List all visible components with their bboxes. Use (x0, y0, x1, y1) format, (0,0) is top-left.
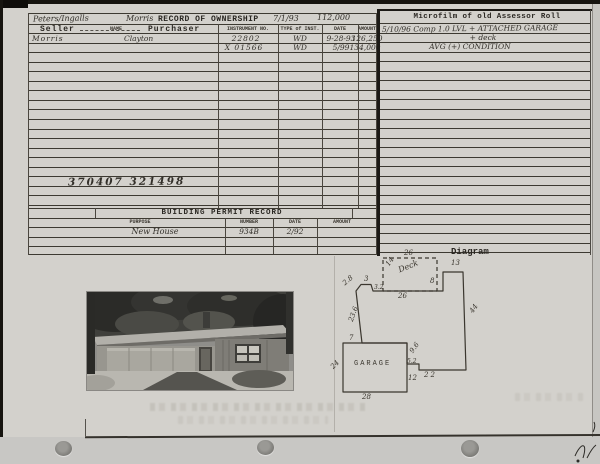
dim-garage-right-lower: 12 (408, 374, 417, 382)
dim-garage-bottom: 28 (362, 393, 371, 401)
dim-top-small: 3 (364, 275, 368, 283)
dim-deck-top: 26 (404, 249, 413, 257)
dim-bottom-wall: 22 (424, 371, 437, 379)
bleed-through-smudge (515, 393, 585, 401)
dim-top-step: 3.2 (374, 284, 384, 291)
dim-top-wall: 26 (398, 292, 407, 300)
dim-right-step-up: 8 (430, 277, 434, 285)
dim-bottom-step: 5.2 (407, 358, 417, 365)
assessor-record-card-scan: Peters/Ingalls Morris RECORD OF OWNERSHI… (0, 0, 600, 464)
pen-scribble (565, 412, 600, 464)
bleed-through-smudge (178, 416, 328, 424)
dim-garage-top: 7 (349, 334, 353, 342)
binder-hole (55, 441, 72, 456)
bleed-through-smudge (150, 403, 365, 411)
footprint-diagram (0, 0, 600, 464)
garage-label: GARAGE (354, 360, 391, 368)
binder-hole (257, 440, 274, 455)
dim-top-right: 13 (451, 259, 460, 267)
binder-hole (461, 440, 479, 457)
